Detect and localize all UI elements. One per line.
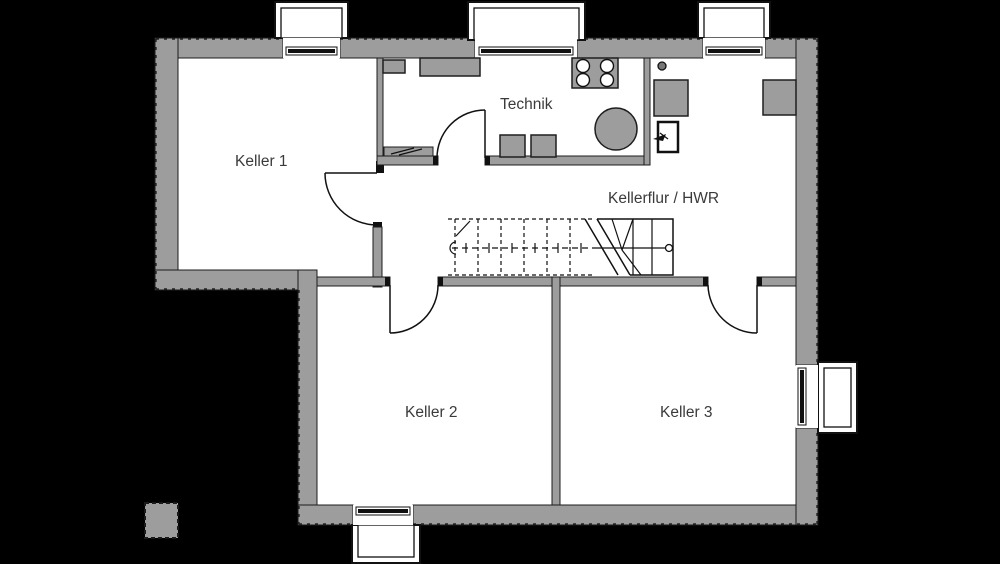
- wall-bottom-1: [298, 505, 353, 525]
- cabinet-left: [654, 80, 688, 116]
- equipment-block-small: [383, 60, 405, 73]
- pillar-dashed: [145, 503, 178, 538]
- room-label-keller-1: Keller 1: [235, 153, 288, 170]
- door-jamb: [385, 277, 390, 286]
- room-label-kellerflur-hwr: Kellerflur / HWR: [608, 190, 719, 207]
- door-jamb: [757, 277, 762, 286]
- window-technik: [468, 2, 585, 58]
- heating-manifold: [572, 58, 618, 88]
- wall-right-upper: [796, 38, 818, 365]
- wall-left-lower: [298, 270, 317, 525]
- window-keller1: [275, 2, 348, 58]
- water-meter-box: [653, 122, 678, 152]
- boiler-tank: [595, 108, 637, 150]
- wall-technik-east: [644, 58, 650, 165]
- storage-block-2: [531, 135, 556, 157]
- room-label-keller-3: Keller 3: [660, 404, 713, 421]
- window-keller3: [796, 362, 857, 433]
- room-label-keller-2: Keller 2: [405, 404, 458, 421]
- wall-keller1-east-upper: [377, 58, 383, 162]
- cabinet-right: [763, 80, 796, 115]
- floorplan-drawing: Keller 1 Technik Kellerflur / HWR Keller…: [0, 0, 1000, 564]
- wall-top-2: [340, 38, 475, 58]
- wall-right-lower: [796, 428, 818, 525]
- wall-top-3: [577, 38, 703, 58]
- walking-line-end: [666, 245, 673, 252]
- wall-left-upper: [155, 38, 178, 290]
- wall-technik-south-left: [377, 156, 438, 165]
- equipment-block-wide: [420, 58, 480, 76]
- door-jamb: [703, 277, 708, 286]
- wall-hall-south-1: [317, 277, 390, 286]
- window-keller2: [352, 505, 420, 563]
- storage-block-1: [500, 135, 525, 157]
- room-label-technik: Technik: [500, 96, 553, 113]
- wall-hall-south-3: [757, 277, 796, 286]
- floorplan-canvas: Keller 1 Technik Kellerflur / HWR Keller…: [0, 0, 1000, 564]
- wall-hall-south-2: [438, 277, 708, 286]
- floor-drain: [658, 62, 666, 70]
- wall-bottom-2: [413, 505, 818, 525]
- door-jamb: [438, 277, 443, 286]
- wall-step: [155, 270, 317, 290]
- technik-sill-bar: [384, 147, 433, 156]
- window-hwr: [698, 2, 770, 58]
- wall-keller2-keller3: [552, 277, 560, 505]
